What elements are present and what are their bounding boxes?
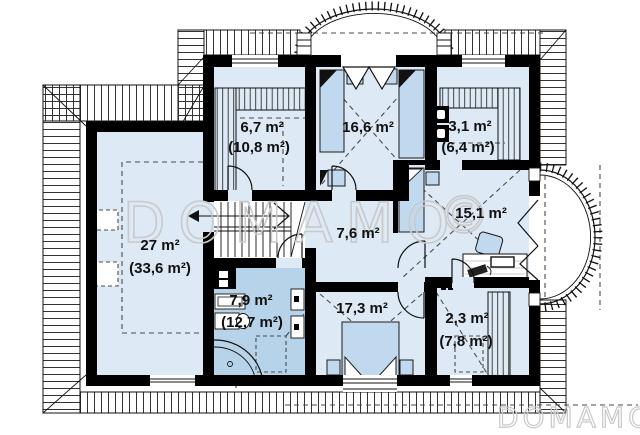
label-hall-area: 7,6 m²	[336, 225, 379, 242]
label-closet-bottom-total: (7,8 m²)	[439, 333, 492, 350]
nightstand	[327, 360, 340, 375]
nightstand	[400, 360, 413, 375]
label-bathroom-area: 7,9 m²	[229, 292, 272, 309]
label-room-left-area: 27 m²	[140, 237, 179, 254]
label-bathroom-total: (12,7 m²)	[221, 314, 283, 331]
arched-balcony-top	[297, 6, 451, 55]
floor-plan-page: DOMAMO © DOMAMO 6,7 m² (10,8 m²) 16,6 m²…	[0, 0, 640, 435]
label-room-right-area: 15,1 m²	[455, 205, 507, 222]
floor-plan: DOMAMO © DOMAMO 6,7 m² (10,8 m²) 16,6 m²…	[0, 0, 640, 435]
nightstand	[426, 172, 439, 185]
monitor	[491, 257, 514, 267]
label-wardrobe-right-total: (6,4 m²)	[441, 139, 494, 156]
cabinet	[328, 170, 345, 186]
label-wardrobe-right-area: 3,1 m²	[448, 118, 491, 135]
label-wardrobe-left-area: 6,7 m²	[240, 119, 283, 136]
label-room-left-total: (33,6 m²)	[129, 260, 191, 277]
watermark-corner-text: DOMAMO	[497, 401, 640, 434]
label-bedroom-bottom-area: 17,3 m²	[336, 300, 388, 317]
bay-balcony-right	[540, 167, 598, 307]
label-closet-bottom-area: 2,3 m²	[445, 310, 488, 327]
label-wardrobe-left-total: (10,8 m²)	[228, 139, 290, 156]
label-bedroom-top-area: 16,6 m²	[342, 119, 394, 136]
french-door-top	[341, 55, 396, 67]
